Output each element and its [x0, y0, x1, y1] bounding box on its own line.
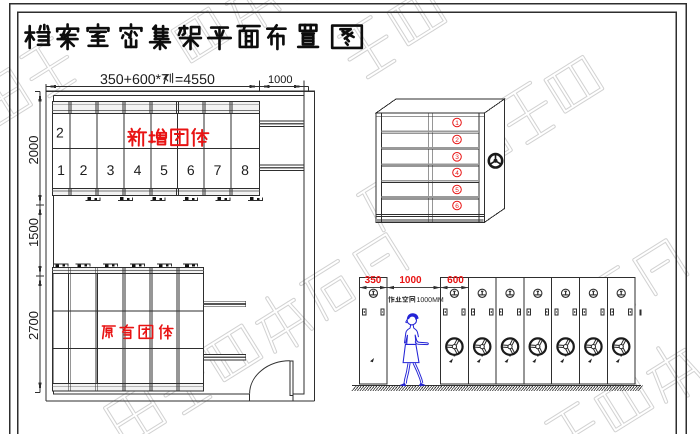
svg-text:350: 350 [365, 275, 382, 286]
svg-text:2000: 2000 [26, 136, 41, 165]
svg-text:6: 6 [455, 203, 459, 210]
svg-text:1500: 1500 [26, 218, 41, 247]
svg-text:1: 1 [57, 162, 65, 178]
svg-text:4: 4 [455, 170, 459, 177]
svg-text:2: 2 [56, 125, 64, 141]
svg-text:1000: 1000 [268, 74, 292, 86]
svg-text:5: 5 [160, 162, 168, 178]
svg-text:350+600: 350+600 [100, 72, 156, 88]
svg-text:3: 3 [455, 154, 459, 161]
svg-text:2: 2 [455, 137, 459, 144]
svg-text:2: 2 [80, 162, 88, 178]
svg-text:4: 4 [134, 162, 142, 178]
svg-text:5: 5 [455, 187, 459, 194]
svg-text:6: 6 [187, 162, 195, 178]
svg-text:2700: 2700 [26, 311, 41, 340]
svg-text:7: 7 [214, 162, 222, 178]
svg-text:3: 3 [107, 162, 115, 178]
svg-text:=4550: =4550 [175, 72, 215, 88]
svg-text:1000: 1000 [399, 275, 422, 286]
svg-text:1: 1 [455, 120, 459, 127]
svg-text:8: 8 [241, 162, 249, 178]
svg-text:1000MM: 1000MM [417, 297, 444, 304]
svg-text:600: 600 [447, 275, 464, 286]
